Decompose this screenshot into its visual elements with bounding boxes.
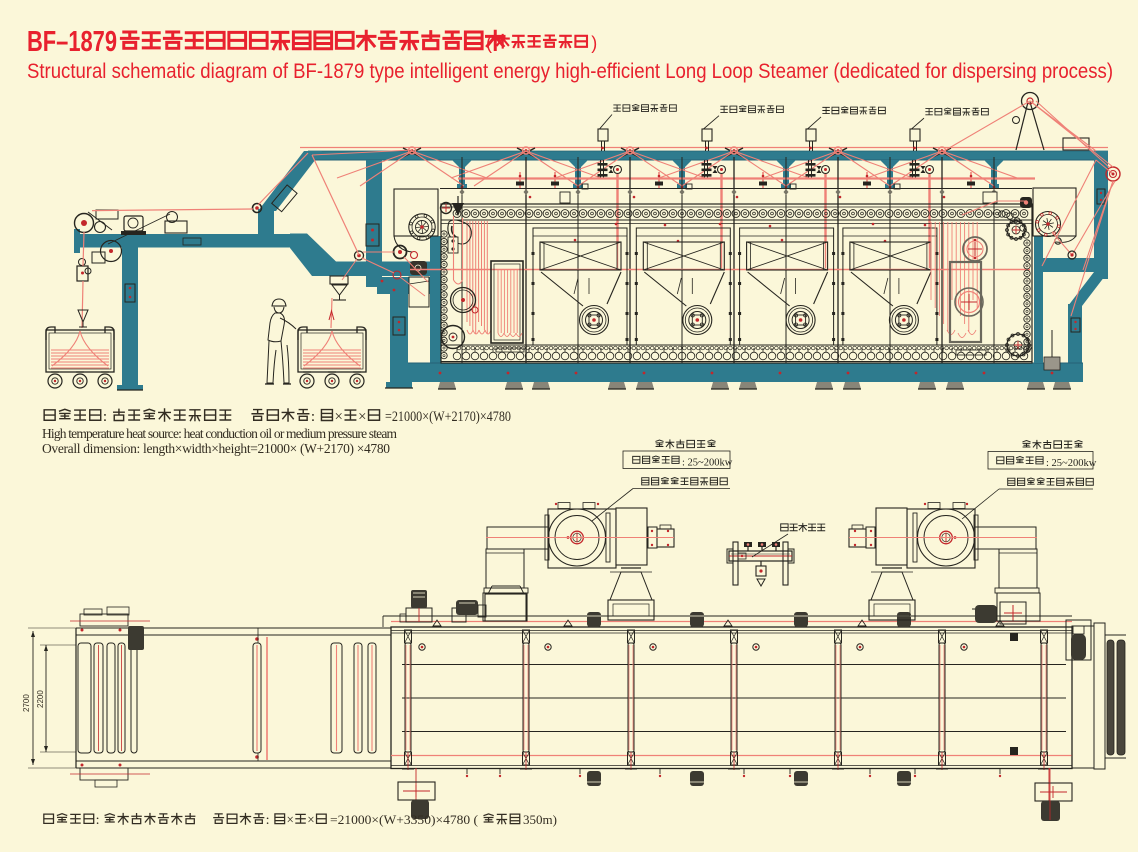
svg-text:×: × xyxy=(358,408,366,425)
svg-text::: : xyxy=(266,812,274,827)
svg-text::: : xyxy=(96,812,104,827)
svg-text:: 25~200kw: : 25~200kw xyxy=(682,458,733,469)
svg-text:High temperature heat source:: High temperature heat source: heat condu… xyxy=(42,426,397,441)
svg-text:2700: 2700 xyxy=(22,694,31,712)
svg-text:×: × xyxy=(307,812,314,827)
svg-text::: : xyxy=(311,408,320,425)
svg-text:×: × xyxy=(287,812,294,827)
svg-text::: : xyxy=(103,408,112,425)
svg-text:(: ( xyxy=(486,33,492,53)
svg-text:Structural schematic diagram o: Structural schematic diagram of BF-1879 … xyxy=(27,60,1113,83)
svg-text:BF–1879: BF–1879 xyxy=(27,26,117,58)
svg-text:=21000×(W+2170)×4780: =21000×(W+2170)×4780 xyxy=(385,409,511,425)
svg-text:Overall dimension: length×widt: Overall dimension: length×width×height=2… xyxy=(42,441,390,456)
svg-text:=21000×(W+3350)×4780 (: =21000×(W+3350)×4780 ( xyxy=(330,812,478,827)
svg-text:: 25~200kw: : 25~200kw xyxy=(1046,458,1097,469)
svg-text:350m): 350m) xyxy=(523,812,557,827)
svg-text:2200: 2200 xyxy=(36,690,45,708)
svg-text:×: × xyxy=(335,408,343,425)
svg-text:): ) xyxy=(591,33,597,53)
